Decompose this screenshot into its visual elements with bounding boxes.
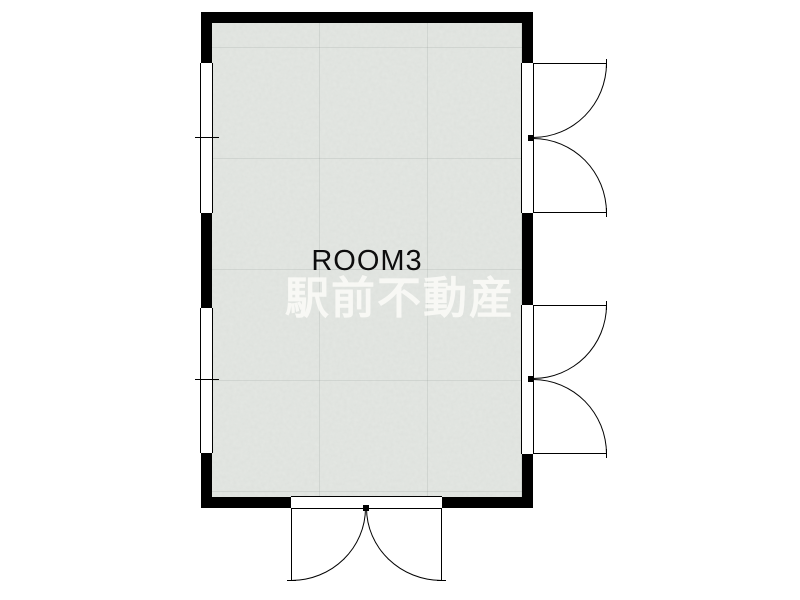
wall-top [201, 12, 533, 23]
door-leaf-end-tick [437, 580, 446, 581]
realtor-watermark: 駅前不動産 [0, 274, 800, 324]
window-lower-left-mullion-tick [195, 379, 219, 380]
door-leaf-end-tick [287, 580, 296, 581]
door-swing-arc [533, 379, 607, 454]
door-meeting-stile [528, 376, 534, 382]
door-swing-arc [533, 138, 607, 213]
window-upper-left-mullion-tick [195, 137, 219, 138]
door-swing-arc [291, 508, 366, 581]
room-name-label: ROOM3 [212, 246, 522, 276]
door-leaf-end-tick [606, 59, 607, 68]
door-swing-arc [366, 508, 442, 581]
door-swing-arc [533, 63, 607, 138]
floorplan-canvas: ROOM3 駅前不動産 [0, 0, 800, 600]
door-leaf-end-tick [606, 449, 607, 458]
door-meeting-stile [363, 505, 369, 511]
door-leaf-end-tick [606, 208, 607, 217]
door-meeting-stile [528, 135, 534, 141]
window-upper-left [200, 63, 213, 213]
window-lower-left [200, 308, 213, 453]
